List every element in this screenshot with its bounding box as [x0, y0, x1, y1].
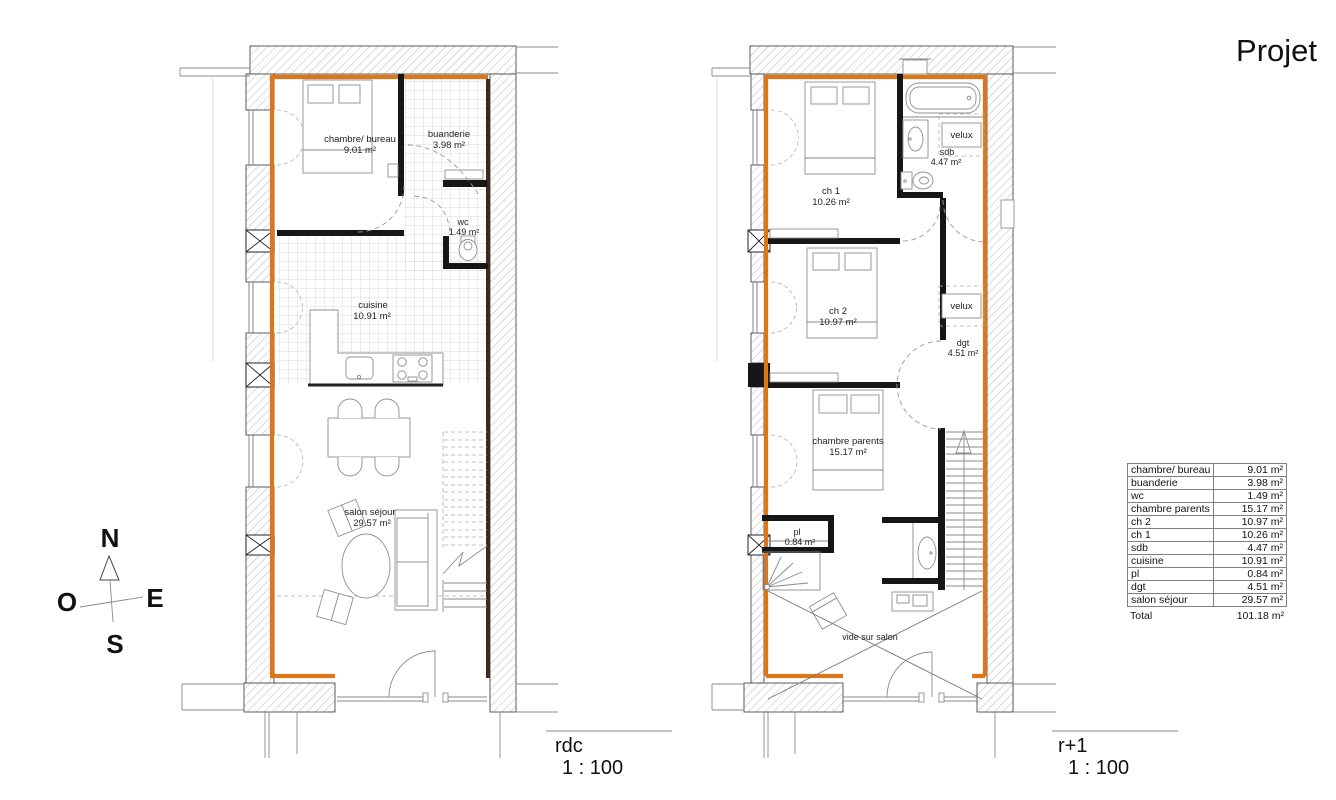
rdc-top-wall — [250, 46, 516, 74]
table-row: wc1.49 m² — [1127, 489, 1287, 503]
compass-west-label: O — [57, 587, 77, 617]
rdc-left-wall — [246, 74, 274, 683]
room-area-cuisine: 10.91 m² — [353, 311, 391, 322]
room-label-sdb: sdb — [940, 147, 955, 157]
rdc-bottom-left-wall — [244, 683, 335, 712]
velux-label: velux — [950, 301, 972, 312]
closet-shelf — [770, 229, 838, 238]
stairs-r1 — [946, 430, 984, 590]
room-area-chambre-bureau: 9.01 m² — [344, 145, 376, 156]
table-row: chambre parents15.17 m² — [1127, 502, 1287, 516]
desk — [892, 592, 933, 611]
washer — [445, 170, 483, 179]
compass-north-arrow — [100, 556, 119, 580]
room-label-parents: chambre parents — [812, 436, 884, 447]
room-label-vide: vide sur salon — [842, 632, 898, 642]
room-area-buanderie: 3.98 m² — [433, 140, 465, 151]
table-row: dgt4.51 m² — [1127, 580, 1287, 594]
room-area-pl: 0.84 m² — [785, 537, 816, 547]
closet-shelf — [770, 373, 838, 382]
velux-label: velux — [950, 130, 972, 141]
bed — [303, 80, 372, 173]
compass-rose: N O E S — [57, 523, 164, 659]
toilet — [459, 236, 477, 261]
room-label-ch1: ch 1 — [822, 186, 840, 197]
table-row: salon séjour29.57 m² — [1127, 593, 1287, 607]
sink — [918, 537, 936, 569]
chair — [809, 593, 846, 630]
compass-south-label: S — [106, 629, 123, 659]
winder-stair-fan — [763, 552, 820, 590]
r1-scale-label: r+1 1 : 100 — [1052, 731, 1178, 779]
room-label-chambre-bureau: chambre/ bureau — [324, 134, 396, 145]
shelf — [388, 164, 398, 177]
floorplan-drawing: .wall{fill:url(#hatch);stroke:#4a4a4a;st… — [0, 0, 1336, 800]
rdc-party-wall-face — [486, 79, 490, 678]
rdc-name: rdc — [555, 735, 583, 757]
chimney — [903, 60, 927, 74]
post-box — [246, 535, 274, 555]
bathtub — [906, 83, 980, 113]
coffee-table — [342, 534, 390, 598]
armchair — [317, 589, 354, 624]
table-row: chambre/ bureau9.01 m² — [1127, 463, 1287, 477]
r1-right-wall-niche — [1001, 200, 1014, 228]
room-area-ch1: 10.26 m² — [812, 197, 850, 208]
r1-name: r+1 — [1058, 735, 1087, 757]
room-label-salon: salon séjour — [344, 507, 395, 518]
post-box — [246, 363, 274, 387]
room-area-sdb: 4.47 m² — [931, 157, 962, 167]
plan-r1: ch 1 10.26 m² sdb 4.47 m² velux velux ch… — [712, 46, 1056, 758]
rdc-entry — [337, 650, 487, 702]
table-total-row: Total101.18 m² — [1127, 607, 1287, 624]
room-area-salon: 29.57 m² — [353, 518, 391, 529]
stove — [393, 355, 432, 382]
door-swing-arc — [903, 204, 940, 241]
toilet — [901, 172, 933, 189]
vide-cross — [768, 591, 982, 699]
table-row: sdb4.47 m² — [1127, 541, 1287, 555]
door-swing-arc — [897, 341, 941, 429]
r1-entry — [843, 652, 977, 702]
table-row: ch 110.26 m² — [1127, 528, 1287, 542]
r1-bottom-right-wall — [977, 683, 1013, 712]
sheet-title: Projet — [1236, 33, 1317, 69]
compass-east-label: E — [146, 583, 163, 613]
r1-bottom-left-wall — [744, 683, 843, 712]
r1-right-wall — [987, 74, 1013, 712]
post-box — [246, 230, 274, 252]
r1-top-wall — [750, 46, 1013, 74]
bathroom-sink — [903, 120, 928, 158]
door-swing-arc — [943, 200, 985, 242]
rdc-scale: 1 : 100 — [562, 757, 623, 779]
door-swing-arc — [358, 186, 404, 232]
room-label-pl: pl — [793, 527, 800, 537]
plan-rdc: chambre/ bureau 9.01 m² buanderie 3.98 m… — [180, 46, 558, 758]
sofa — [395, 510, 437, 610]
room-label-wc: wc — [457, 217, 469, 227]
floorplan-sheet: .wall{fill:url(#hatch);stroke:#4a4a4a;st… — [0, 0, 1336, 800]
r1-window-swing-arcs — [771, 110, 799, 487]
stairs-rdc — [443, 432, 487, 612]
room-area-wc: 1.49 m² — [449, 227, 480, 237]
rdc-scale-label: rdc 1 : 100 — [546, 731, 672, 779]
table-row: pl0.84 m² — [1127, 567, 1287, 581]
room-label-ch2: ch 2 — [829, 306, 847, 317]
table-row: buanderie3.98 m² — [1127, 476, 1287, 490]
bed — [805, 82, 875, 174]
room-label-dgt: dgt — [957, 338, 970, 348]
areas-table: chambre/ bureau9.01 m² buanderie3.98 m² … — [1127, 463, 1287, 624]
r1-scale: 1 : 100 — [1068, 757, 1129, 779]
room-area-ch2: 10.97 m² — [819, 317, 857, 328]
room-label-buanderie: buanderie — [428, 129, 470, 140]
table-row: ch 210.97 m² — [1127, 515, 1287, 529]
dining-table — [328, 399, 410, 476]
room-area-parents: 15.17 m² — [829, 447, 867, 458]
rdc-right-wall — [490, 74, 516, 712]
compass-north-label: N — [101, 523, 120, 553]
room-area-dgt: 4.51 m² — [948, 348, 979, 358]
room-label-cuisine: cuisine — [358, 300, 388, 311]
table-row: cuisine10.91 m² — [1127, 554, 1287, 568]
